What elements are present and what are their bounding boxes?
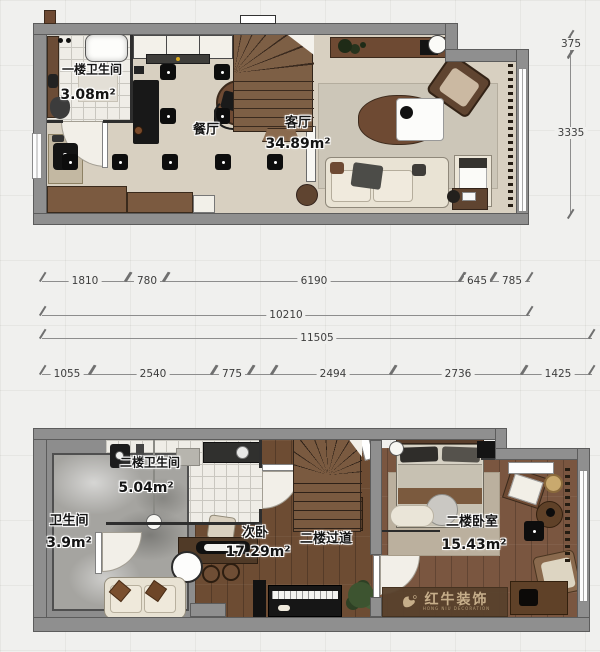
f2-wall-step-block [190, 603, 226, 617]
floorplan-canvas: 一楼卫生间 3.08m² 餐厅 客厅 34.89m² 375 3335 1810… [0, 0, 600, 652]
f1-bathroom-area: 3.08m² [60, 87, 115, 103]
f2-bedroom2-area: 17.29m² [225, 544, 290, 560]
f2-black-stand [524, 521, 544, 541]
f1-bath-wall-bottom-a [47, 120, 63, 123]
f1-small-chair [447, 190, 460, 203]
f1-bath-wall-right [130, 35, 133, 123]
brand-watermark: 红牛装饰 HONG NIU DECORATION [382, 587, 508, 617]
dim-label: 785 [499, 275, 525, 287]
f2-bath-wall-right-a [259, 440, 262, 468]
f1-nightstand-book [462, 192, 476, 201]
f1-skylight [240, 15, 276, 24]
f1-dining-label: 餐厅 [193, 119, 219, 138]
f1-wall-left [33, 23, 47, 225]
f2-wall-bottom [33, 617, 590, 632]
dim-label: 6190 [298, 275, 331, 287]
f2-bath-wall-bottom [106, 522, 262, 525]
f2-sink [236, 446, 249, 459]
f2-piano-button [278, 605, 290, 611]
f1-living-label: 客厅 [285, 112, 311, 131]
f1-sofa-pillow [412, 164, 426, 176]
f1-cabinet-mid [127, 192, 193, 213]
f2-divider-wall-upper [370, 440, 382, 555]
f1-bathtub [85, 34, 128, 62]
f1-cabinet-left [47, 186, 127, 213]
dim-label: 11505 [297, 332, 336, 344]
downlight [214, 64, 230, 80]
f2-bedroom2-label: 次卧 [242, 522, 268, 541]
f1-faucet-dots [58, 38, 63, 43]
brand-subtitle: HONG NIU DECORATION [423, 607, 490, 611]
f2-stairs [293, 432, 361, 532]
dim-label: 780 [134, 275, 160, 287]
f1-window-right [518, 68, 527, 212]
f2-window-sill [508, 462, 554, 474]
downlight [162, 154, 178, 170]
downlight [112, 154, 128, 170]
f2-fur-bench [390, 505, 434, 527]
f2-stool [222, 563, 240, 581]
f2-sink-counter [203, 442, 261, 463]
f2-window-right [579, 470, 588, 602]
f2-wall-left [33, 428, 47, 632]
dim-label: 2494 [317, 368, 350, 380]
dim-label: 775 [219, 368, 245, 380]
f1-sofa-pillow [330, 162, 344, 174]
f1-daybed-pillow [459, 158, 487, 168]
f1-bath-door-leaf [102, 121, 108, 168]
dim-label: 2540 [137, 368, 170, 380]
f2-tv-line [382, 530, 440, 532]
dim-v-375-label: 375 [558, 38, 584, 50]
downlight [160, 64, 176, 80]
f2-bathsmall-label: 卫生间 [49, 510, 88, 529]
f1-side-stool [296, 184, 318, 206]
f1-bath-wall-bottom-b [103, 120, 133, 123]
f1-kitchen-items [52, 135, 64, 142]
f1-window-left [32, 133, 42, 179]
f1-coffee-tray [396, 98, 444, 141]
f1-console-plant [338, 39, 352, 53]
dim-label: 1425 [542, 368, 575, 380]
f1-bath-sink [48, 74, 58, 88]
f1-tv-dot [176, 57, 180, 61]
dim-label: 10210 [266, 309, 305, 321]
dim-label: 1810 [69, 275, 102, 287]
f2-wall-top [33, 428, 507, 440]
f2-bed-pillow [442, 446, 481, 462]
f2-master-area: 15.43m² [441, 537, 506, 553]
f2-master-door-leaf [373, 555, 380, 598]
f1-armchair-cushion [438, 67, 480, 108]
f2-master-label: 二楼卧室 [446, 511, 498, 530]
f1-chimney [44, 10, 56, 24]
dim-label: 2736 [442, 368, 475, 380]
downlight [215, 154, 231, 170]
f2-straw-stool [544, 474, 563, 493]
downlight [62, 154, 78, 170]
f2-side-table-item [546, 508, 555, 517]
f1-coffee-bowl [400, 106, 413, 119]
f2-corridor-label: 二楼过道 [300, 528, 352, 547]
f2-bottom-shelf-item [519, 589, 538, 606]
brand-name: 红牛装饰 [425, 593, 489, 607]
f1-bathroom-label: 一楼卫生间 [62, 61, 122, 78]
f2-piano [268, 585, 342, 617]
f2-bed-pillow [400, 446, 439, 462]
dim-label: 1055 [51, 368, 84, 380]
downlight [267, 154, 283, 170]
f2-piano-keys [272, 591, 338, 599]
f1-sofa-throw [350, 162, 383, 190]
f2-stool [202, 565, 220, 583]
f1-curtain [508, 64, 513, 210]
f1-wall-top [33, 23, 457, 35]
f1-wall-bottom [33, 213, 529, 225]
downlight [160, 108, 176, 124]
f1-plant-pot [134, 126, 143, 135]
bull-logo-icon [400, 593, 418, 611]
f2-curtain [565, 468, 570, 564]
dim-v-3335-label: 3335 [555, 127, 588, 139]
f2-divider-wall-lower [370, 597, 382, 617]
f1-pillar [306, 126, 316, 182]
f1-living-area: 34.89m² [265, 136, 330, 152]
f2-wall-step-h [495, 448, 590, 460]
f2-bathsmall-area: 3.9m² [46, 535, 92, 551]
f1-shelf-white [193, 195, 215, 213]
f1-shelf-items [134, 66, 144, 74]
f2-bath-label: 二楼卫生间 [120, 454, 180, 471]
f2-bath-area: 5.04m² [118, 480, 173, 496]
f2-bathsmall-door-leaf [95, 532, 102, 574]
f2-daybed-mattress [508, 473, 544, 505]
f2-stairs-treads [294, 475, 362, 533]
f2-speaker [253, 580, 266, 617]
dim-label: 645 [464, 275, 490, 287]
f2-bedside-lamp [389, 441, 404, 456]
